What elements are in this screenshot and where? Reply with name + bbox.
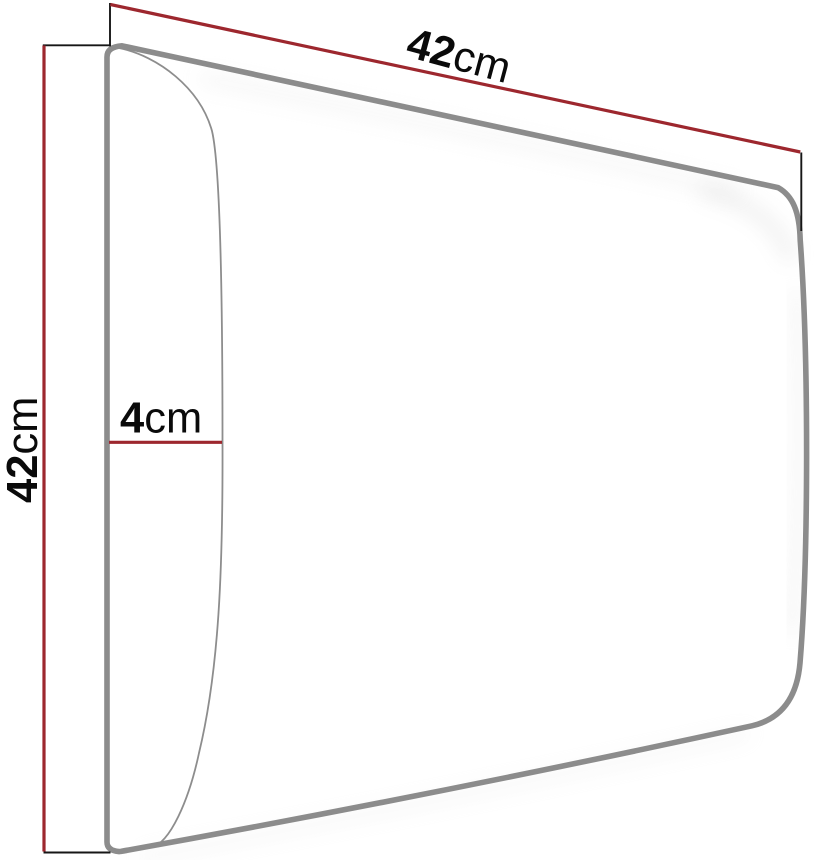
svg-text:4cm: 4cm — [120, 395, 202, 443]
svg-text:42cm: 42cm — [0, 397, 47, 503]
svg-text:42cm: 42cm — [402, 19, 516, 93]
